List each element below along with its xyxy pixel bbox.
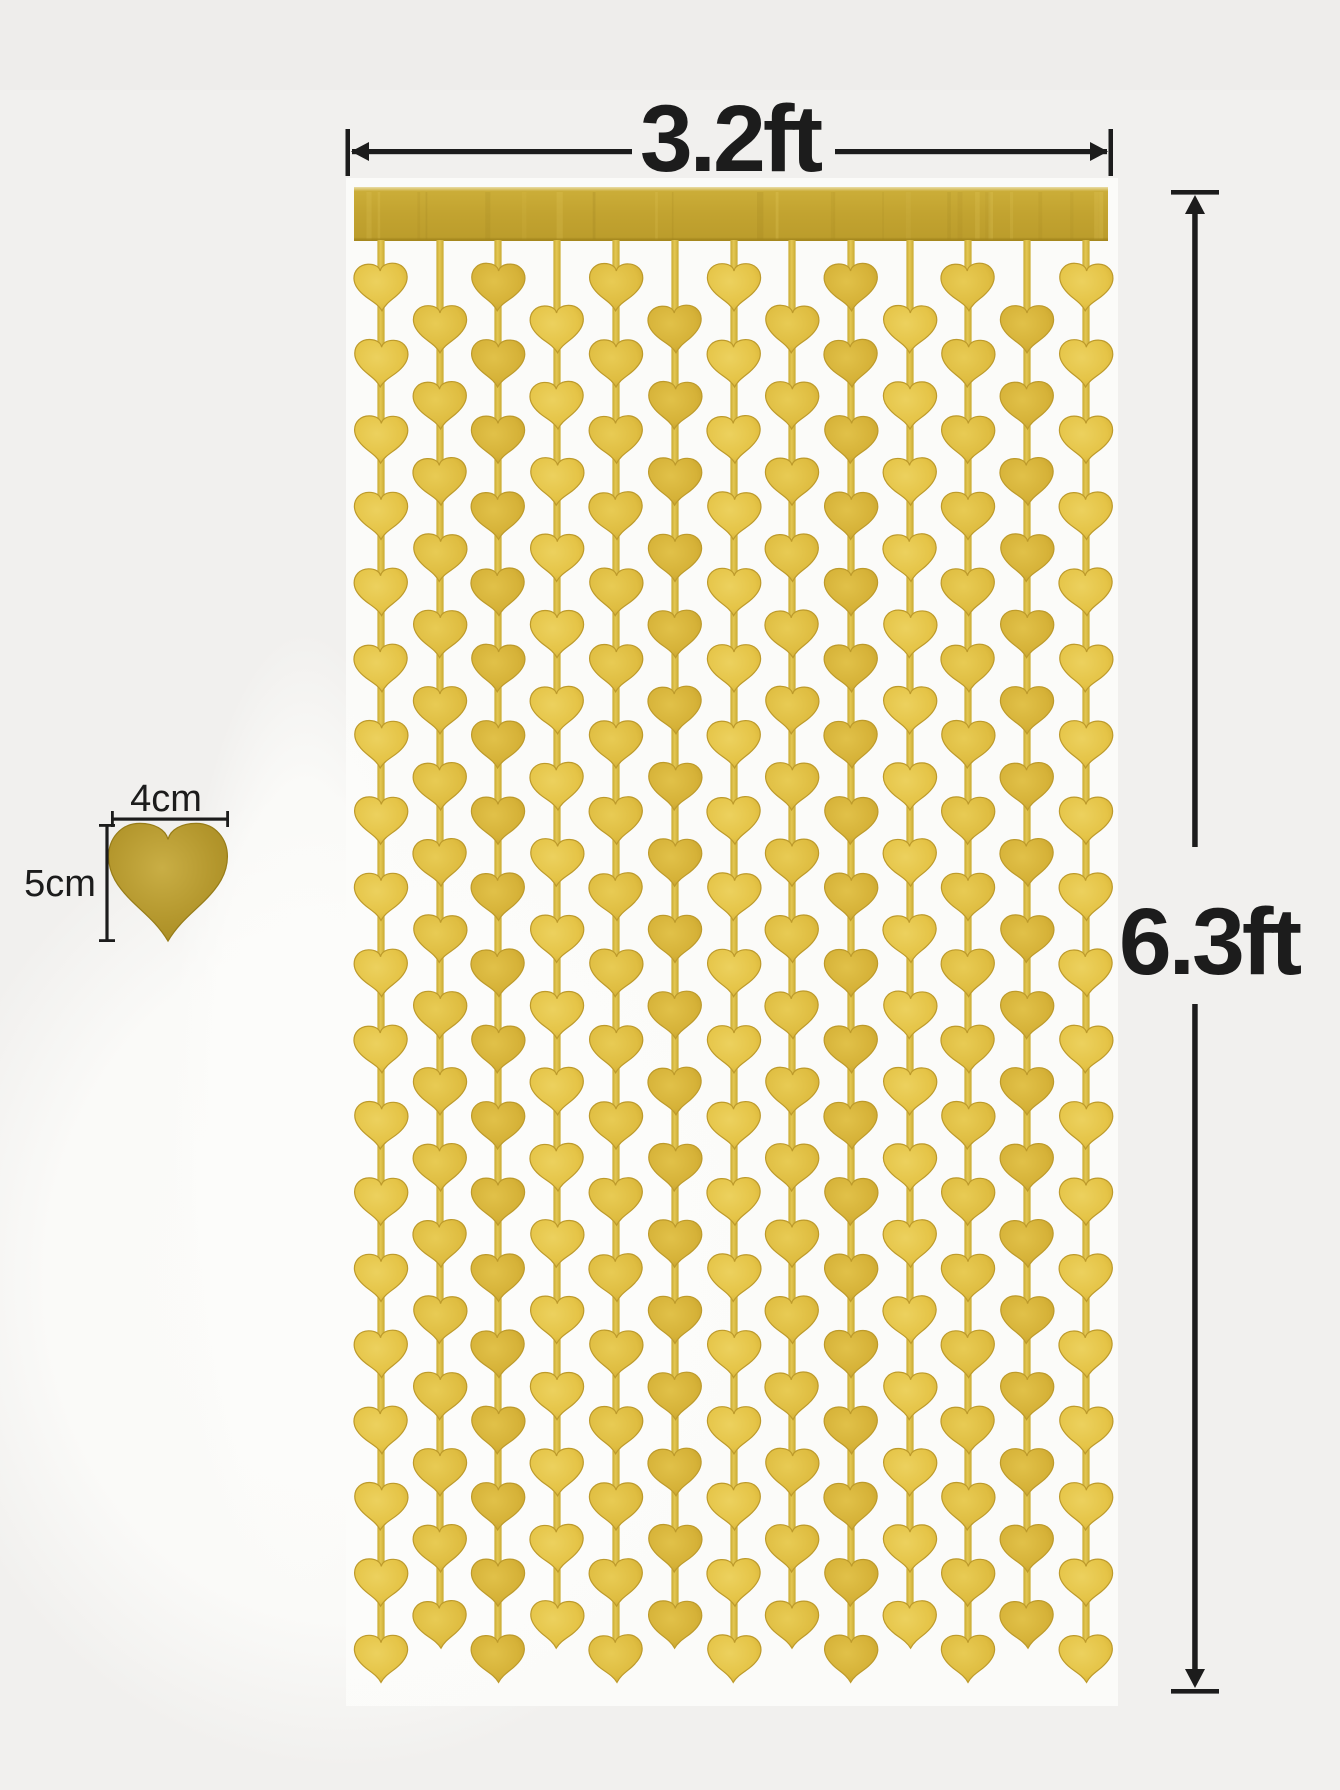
svg-text:6.3ft: 6.3ft (1119, 889, 1302, 995)
svg-text:3.2ft: 3.2ft (640, 86, 823, 192)
svg-text:5cm: 5cm (24, 863, 96, 905)
svg-text:4cm: 4cm (130, 778, 202, 820)
